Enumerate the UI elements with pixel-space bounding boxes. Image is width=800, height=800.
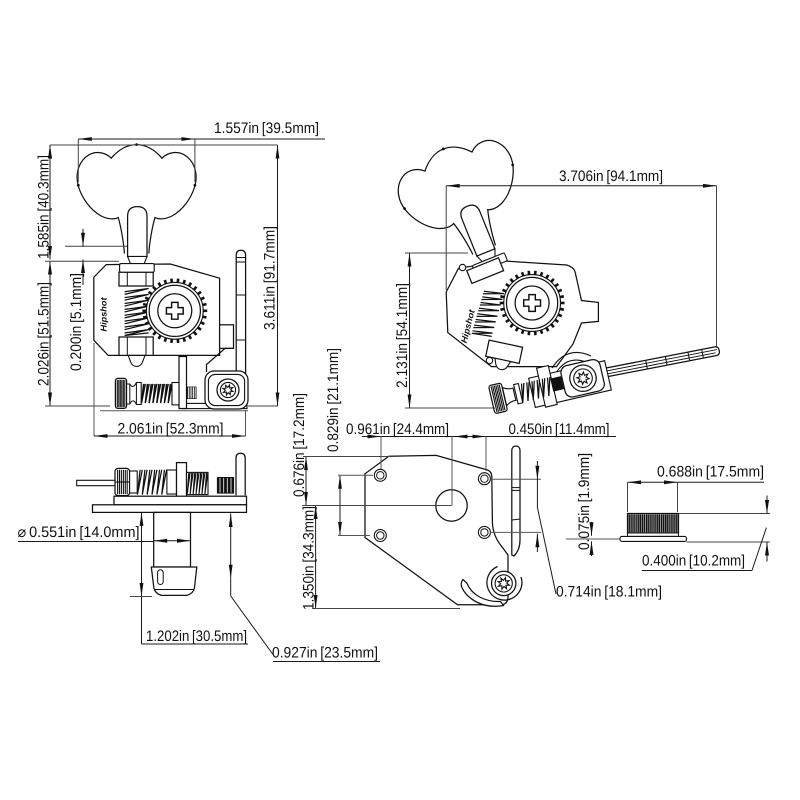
svg-text:1.557in [39.5mm]: 1.557in [39.5mm]: [214, 120, 319, 137]
svg-text:3.706in [94.1mm]: 3.706in [94.1mm]: [559, 168, 663, 185]
svg-text:2.131in [54.1mm]: 2.131in [54.1mm]: [394, 283, 411, 388]
svg-text:1.585in [40.3mm]: 1.585in [40.3mm]: [36, 155, 53, 259]
svg-text:0.688in [17.5mm]: 0.688in [17.5mm]: [657, 464, 764, 481]
svg-text:1.202in [30.5mm]: 1.202in [30.5mm]: [146, 628, 247, 645]
svg-text:0.829in [21.1mm]: 0.829in [21.1mm]: [325, 348, 342, 452]
svg-text:⌀ 0.551in [14.0mm]: ⌀ 0.551in [14.0mm]: [18, 524, 140, 541]
svg-text:0.927in [23.5mm]: 0.927in [23.5mm]: [272, 645, 378, 662]
svg-text:0.075in [1.9mm]: 0.075in [1.9mm]: [576, 453, 593, 550]
svg-text:1.350in [34.3mm]: 1.350in [34.3mm]: [301, 506, 318, 610]
svg-text:0.200in [5.1mm]: 0.200in [5.1mm]: [68, 273, 85, 371]
svg-text:0.961in [24.4mm]: 0.961in [24.4mm]: [346, 421, 449, 438]
svg-text:0.714in [18.1mm]: 0.714in [18.1mm]: [556, 584, 662, 601]
svg-text:0.450in [11.4mm]: 0.450in [11.4mm]: [509, 421, 610, 438]
svg-text:0.676in [17.2mm]: 0.676in [17.2mm]: [291, 393, 308, 497]
svg-text:0.400in [10.2mm]: 0.400in [10.2mm]: [642, 553, 745, 570]
svg-text:3.611in [91.7mm]: 3.611in [91.7mm]: [262, 226, 279, 330]
svg-text:2.026in [51.5mm]: 2.026in [51.5mm]: [36, 282, 53, 386]
svg-text:Hipshot: Hipshot: [99, 296, 109, 331]
svg-text:2.061in [52.3mm]: 2.061in [52.3mm]: [118, 421, 224, 438]
